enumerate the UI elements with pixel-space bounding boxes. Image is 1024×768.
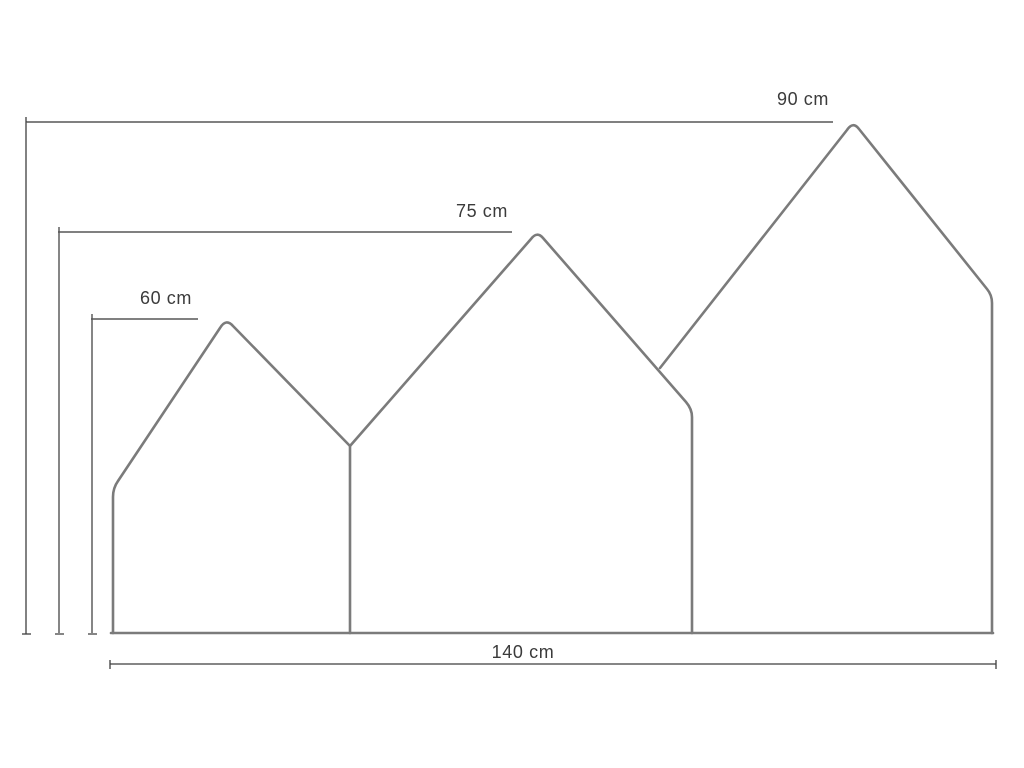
headboard-dimension-drawing: 90 cm 75 cm 60 cm 140 cm: [0, 0, 1024, 768]
label-width-140cm: 140 cm: [492, 642, 555, 662]
label-height-60cm: 60 cm: [140, 288, 192, 308]
panel-outlines: [111, 125, 993, 633]
middle-panel-outline: [350, 235, 692, 633]
left-panel-outline: [113, 322, 350, 633]
label-height-90cm: 90 cm: [777, 89, 829, 109]
dimension-drawing-canvas: 90 cm 75 cm 60 cm 140 cm: [0, 0, 1024, 768]
right-panel-outline: [660, 125, 992, 633]
label-height-75cm: 75 cm: [456, 201, 508, 221]
dimension-lines: [22, 117, 996, 669]
dimension-labels: 90 cm 75 cm 60 cm 140 cm: [140, 89, 829, 662]
